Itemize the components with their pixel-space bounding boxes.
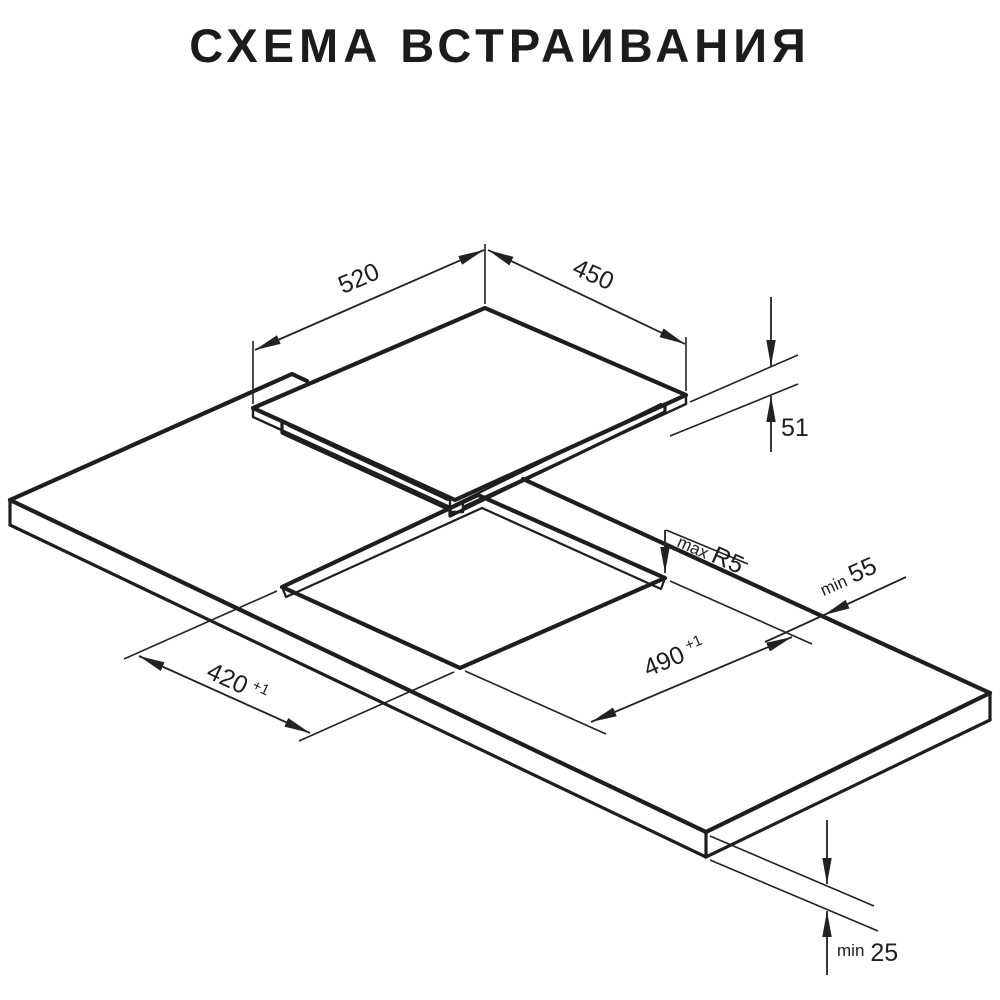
countertop-back-left-edge bbox=[10, 374, 307, 500]
extension-line bbox=[299, 672, 454, 741]
dimension-label-51: 51 bbox=[781, 414, 809, 442]
extension-line bbox=[710, 860, 878, 931]
extension-line bbox=[690, 355, 798, 402]
countertop-bottom-front-left-edge bbox=[10, 525, 706, 857]
dimension-label-min-25: min25 bbox=[837, 939, 898, 967]
countertop-front-right-edge bbox=[706, 693, 990, 832]
dimension-bottom-clearance: min25 bbox=[710, 820, 898, 975]
dimension-label-420: 420+1 bbox=[202, 657, 272, 709]
dimension-rear-clearance: min55 bbox=[765, 552, 906, 642]
dimension-label-max-r5: maxR5 bbox=[674, 526, 749, 580]
installation-diagram-page: СХЕМА ВСТРАИВАНИЯ 520 bbox=[0, 0, 1000, 1000]
countertop-cutout bbox=[282, 495, 665, 668]
extension-line bbox=[670, 384, 798, 436]
dimension-label-520: 520 bbox=[334, 258, 383, 300]
page-title: СХЕМА ВСТРАИВАНИЯ bbox=[189, 19, 811, 72]
cutout-outline bbox=[282, 495, 665, 668]
installation-diagram: СХЕМА ВСТРАИВАНИЯ 520 bbox=[0, 0, 1000, 1000]
cooktop-top-face bbox=[253, 308, 686, 500]
dimension-cooktop-height: 51 bbox=[670, 297, 809, 452]
dimension-cutout-depth: 420+1 bbox=[124, 591, 454, 741]
countertop-back-right-edge bbox=[523, 479, 990, 693]
extension-line bbox=[465, 671, 606, 734]
extension-line bbox=[124, 591, 277, 659]
dimension-label-490: 490+1 bbox=[639, 632, 709, 683]
cooktop bbox=[253, 308, 686, 516]
dimension-cutout-width: 490+1 bbox=[465, 581, 812, 734]
dimension-corner-radius: maxR5 bbox=[665, 526, 748, 580]
dimension-label-450: 450 bbox=[569, 253, 619, 296]
countertop-bottom-front-right-edge bbox=[706, 720, 990, 857]
